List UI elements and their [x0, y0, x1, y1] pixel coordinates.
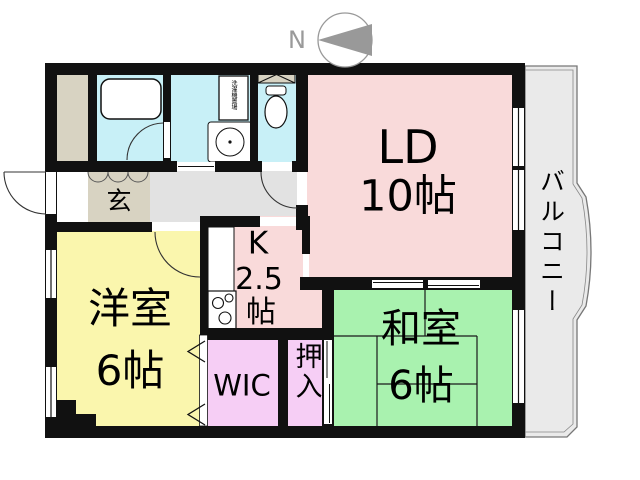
label-oshiire: 押入: [293, 342, 320, 402]
compass-n-label: N: [288, 28, 306, 52]
label-japanese-size: 6帖: [388, 366, 453, 406]
label-japanese-name: 和室: [381, 309, 461, 349]
window-japanese-balcony: [513, 310, 524, 403]
label-western-name: 洋室: [88, 288, 172, 330]
entrance-door-swing: [4, 172, 46, 214]
kitchen-counter: [208, 227, 236, 330]
label-laundry: 洗濯機置場: [230, 80, 236, 110]
sliding-door-oshiire: [324, 340, 332, 424]
bathtub-icon: [101, 79, 161, 119]
label-balcony: バルコニー: [539, 168, 564, 318]
window-west-1: [46, 250, 56, 298]
entrance-opening: [46, 172, 56, 214]
wall-top: [45, 63, 525, 75]
label-ld-size: 10帖: [359, 176, 457, 219]
compass: [318, 13, 372, 67]
toilet-tank-icon: [266, 86, 286, 95]
label-kitchen-k: K: [248, 229, 268, 260]
wall-bottom: [45, 426, 525, 438]
label-kitchen-unit: 帖: [246, 298, 276, 328]
sink-drain-icon: [228, 140, 231, 143]
label-wic: WIC: [213, 372, 270, 401]
label-ld-name: LD: [377, 124, 438, 170]
label-kitchen-size: 2.5: [235, 265, 283, 295]
window-west-2: [46, 367, 56, 417]
sliding-door-ld-japanese: [372, 280, 480, 288]
window-ld-balcony: [513, 108, 524, 230]
pipe-space: [57, 75, 88, 163]
floor-plan: N LD 10帖 洋室 6帖 和室 6帖 K 2.5 帖 WIC 押入 玄 バル…: [0, 0, 640, 480]
stove-icon: [208, 291, 236, 330]
label-western-size: 6帖: [96, 350, 165, 392]
toilet-bowl-icon: [265, 96, 287, 128]
label-entrance: 玄: [106, 189, 131, 214]
